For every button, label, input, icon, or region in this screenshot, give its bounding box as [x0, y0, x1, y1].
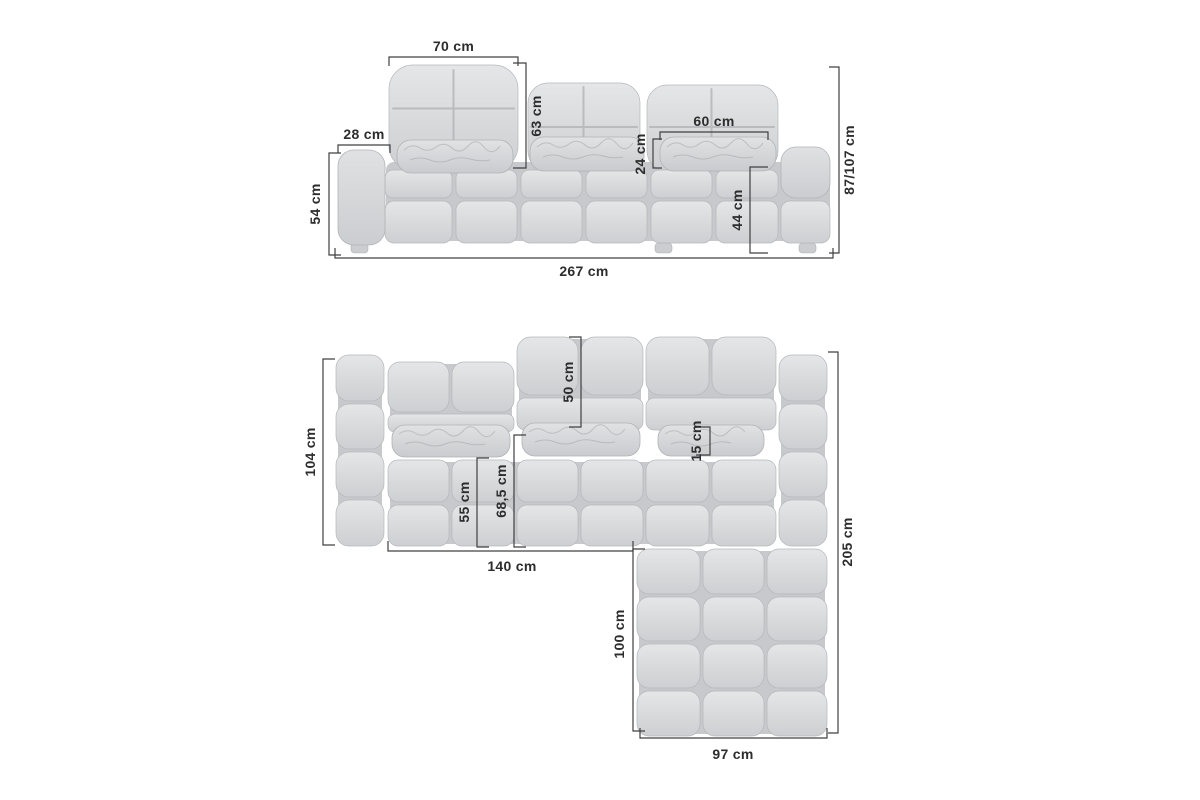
pillow — [522, 423, 640, 456]
chaise-tuft — [637, 691, 700, 736]
pillow — [397, 140, 513, 173]
top-view: 104 cm 50 cm 15 cm 55 cm 68,5 cm 140 cm — [302, 337, 855, 762]
chaise-tuft — [767, 549, 827, 594]
chaise-tuft — [637, 549, 700, 594]
dim-line — [829, 67, 839, 253]
dim-label: 44 cm — [729, 189, 745, 230]
base-tuft — [385, 201, 452, 243]
front-sofa — [338, 65, 830, 253]
base-tuft — [781, 201, 830, 243]
right-armrest — [781, 147, 830, 198]
lumbar-pillows — [397, 137, 776, 173]
seat-tuft — [712, 505, 776, 546]
dim-headrest-width: 70 cm — [389, 38, 518, 66]
armrest-tuft — [336, 404, 384, 449]
dim-label: 97 cm — [712, 746, 753, 762]
dim-overall-depth: 205 cm — [828, 352, 855, 733]
dim-label: 140 cm — [487, 558, 536, 574]
seat-tuft — [716, 170, 778, 198]
armrest-tuft — [336, 452, 384, 497]
backrest-tuft — [646, 337, 709, 395]
dim-label: 24 cm — [632, 133, 648, 174]
backrest-tuft — [388, 362, 449, 412]
dim-label: 70 cm — [433, 38, 474, 54]
base-tuft — [456, 201, 517, 243]
dim-label: 63 cm — [528, 95, 544, 136]
dim-label: 100 cm — [611, 609, 627, 658]
seat-tuft — [388, 460, 449, 502]
dim-label: 54 cm — [307, 183, 323, 224]
armrest-tuft — [336, 500, 384, 546]
base-tuft — [586, 201, 647, 243]
seat-tuft — [517, 460, 578, 502]
seat-tuft — [651, 170, 712, 198]
pillow — [392, 425, 510, 457]
sofa-dimensions-diagram: 70 cm 28 cm 63 cm 60 cm 24 cm 44 cm — [0, 0, 1200, 800]
base-row — [385, 201, 830, 243]
armrest-tuft — [779, 452, 827, 497]
chaise-tuft — [637, 644, 700, 688]
plan-pillows — [392, 423, 764, 457]
backrest-tuft — [452, 362, 514, 412]
seat-tuft — [646, 505, 709, 546]
sofa-foot — [655, 243, 672, 253]
dim-label: 205 cm — [839, 517, 855, 566]
chaise-tuft — [637, 597, 700, 641]
seat-tuft — [456, 170, 517, 198]
armrest-tuft — [779, 404, 827, 449]
dim-overall-height: 87/107 cm — [829, 67, 857, 253]
backrest-tuft — [581, 337, 643, 395]
dim-line — [323, 359, 335, 545]
dim-body-depth: 104 cm — [302, 359, 335, 545]
pillow — [660, 137, 776, 171]
left-armrest — [338, 150, 385, 245]
base-tuft — [716, 201, 778, 243]
seat-tuft — [521, 170, 582, 198]
chaise-tuft — [703, 597, 764, 641]
dim-label: 50 cm — [560, 361, 576, 402]
pillow — [530, 137, 644, 171]
dim-armrest-width: 28 cm — [338, 126, 390, 153]
dim-label: 68,5 cm — [493, 464, 509, 517]
seat-tuft — [385, 170, 452, 198]
seat-tuft — [517, 505, 578, 546]
chaise-tuft — [703, 549, 764, 594]
front-view: 70 cm 28 cm 63 cm 60 cm 24 cm 44 cm — [307, 38, 857, 279]
base-tuft — [521, 201, 582, 243]
chaise-tuft — [767, 691, 827, 736]
seat-tuft — [581, 460, 643, 502]
dim-label: 60 cm — [693, 113, 734, 129]
dim-label: 104 cm — [302, 427, 318, 476]
seat-tuft — [581, 505, 643, 546]
dim-label: 87/107 cm — [841, 125, 857, 195]
base-tuft — [651, 201, 712, 243]
dim-line — [828, 352, 838, 733]
seat-tuft — [712, 460, 776, 502]
dim-label: 55 cm — [456, 481, 472, 522]
chaise-tuft — [767, 597, 827, 641]
pillow — [658, 425, 764, 456]
sofa-foot — [799, 243, 816, 253]
backrest-tuft — [712, 337, 776, 395]
armrest-tuft — [336, 355, 384, 401]
dim-label: 28 cm — [343, 126, 384, 142]
chaise-tuft — [703, 644, 764, 688]
diagram-svg: 70 cm 28 cm 63 cm 60 cm 24 cm 44 cm — [0, 0, 1200, 800]
armrest-tuft — [779, 500, 827, 546]
chaise-tuft — [703, 691, 764, 736]
seat-tuft — [388, 505, 449, 546]
dim-label: 15 cm — [688, 420, 704, 461]
chaise-tuft — [767, 644, 827, 688]
armrest-tuft — [779, 355, 827, 401]
seat-tuft — [646, 460, 709, 502]
dim-label: 267 cm — [559, 263, 608, 279]
dim-armrest-height: 54 cm — [307, 153, 341, 255]
